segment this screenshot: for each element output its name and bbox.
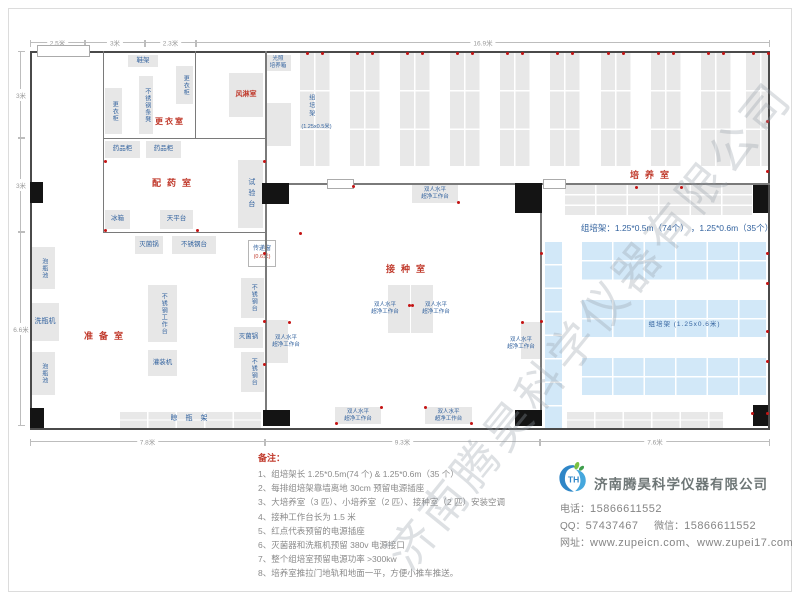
notes-title: 备注： [258, 451, 505, 464]
power-outlet-dot [540, 252, 543, 255]
power-outlet-dot [104, 160, 107, 163]
power-outlet-dot [421, 52, 424, 55]
dim-left-1: 3米 [20, 51, 21, 138]
column [263, 410, 290, 426]
power-outlet-dot [196, 229, 199, 232]
power-outlet-dot [321, 52, 324, 55]
power-outlet-dot [766, 412, 769, 415]
rack-small-size-label: (1.25x0.5米) [289, 123, 344, 131]
power-outlet-dot [766, 252, 769, 255]
power-outlet-dot [521, 52, 524, 55]
note-item: 5、红点代表预留的电源插座 [258, 524, 505, 538]
company-name: 济南腾昊科学仪器有限公司 [594, 473, 768, 493]
wall-left-block [265, 51, 267, 426]
notes-block: 备注： 1、组培架长 1.25*0.5m(74 个) & 1.25*0.6m（3… [258, 451, 505, 581]
power-outlet-dot [657, 52, 660, 55]
note-item: 1、组培架长 1.25*0.5m(74 个) & 1.25*0.6m（35 个） [258, 467, 505, 481]
column [753, 185, 768, 213]
power-outlet-dot [288, 321, 291, 324]
room-label-pharmacy: 配药室 [152, 176, 197, 189]
power-outlet-dot [540, 320, 543, 323]
company-logo-icon: TH [556, 461, 590, 495]
power-outlet-dot [766, 360, 769, 363]
note-item: 2、每排组培架靠墙离地 30cm 预留电源插座 [258, 481, 505, 495]
room-label-culture: 培养室 [630, 168, 675, 181]
dim-bottom-1: 7.8米 [30, 441, 265, 442]
power-outlet-dot [352, 185, 355, 188]
power-outlet-dot [680, 186, 683, 189]
dim-left-2: 3米 [20, 138, 21, 232]
column [753, 405, 768, 426]
wall-dressing-airshower [195, 51, 196, 138]
power-outlet-dot [263, 252, 266, 255]
power-outlet-dot [766, 330, 769, 333]
dim-top-3: 2.3米 [145, 42, 196, 43]
power-outlet-dot [470, 422, 473, 425]
note-item: 7、整个组培室预留电源功率 >300kw [258, 552, 505, 566]
dual-clean-bench-label: 双人水平超净工作台 [415, 300, 457, 318]
power-outlet-dot [263, 160, 266, 163]
power-outlet-dot [411, 304, 414, 307]
power-outlet-dot [766, 120, 769, 123]
outer-wall [30, 51, 770, 430]
power-outlet-dot [299, 232, 302, 235]
power-outlet-dot [607, 52, 610, 55]
dual-clean-bench-label: 双人水平超净工作台 [266, 333, 306, 351]
power-outlet-dot [556, 52, 559, 55]
svg-text:TH: TH [568, 474, 579, 484]
column [30, 182, 43, 203]
note-item: 8、培养室推拉门地轨和地面一平，方便小推车推送。 [258, 566, 505, 580]
room-label-inoculation: 接种室 [386, 262, 431, 275]
dual-clean-bench-label: 双人水平超净工作台 [364, 300, 406, 318]
company-website-line: 网址：www.zupeicn.com、www.zupei17.com [560, 534, 793, 550]
power-outlet-dot [767, 52, 770, 55]
dim-top-4: 16.9米 [196, 42, 770, 43]
room-label-dressing: 更衣室 [155, 116, 185, 127]
rack-small-label: 组培架 [303, 87, 317, 125]
power-outlet-dot [335, 422, 338, 425]
door-culture-rackroom [543, 179, 566, 189]
wall-inoculation-rackroom [540, 183, 542, 426]
power-outlet-dot [622, 52, 625, 55]
dual-clean-bench-label: 双人水平超净工作台 [501, 335, 541, 353]
dim-bottom-3: 7.6米 [540, 441, 770, 442]
power-outlet-dot [104, 229, 107, 232]
rack-big-label: 组培架 (1.25x0.6米) [637, 320, 732, 330]
room-label-prep: 准备室 [84, 329, 129, 342]
wall-pharmacy-prep [103, 232, 266, 233]
power-outlet-dot [635, 186, 638, 189]
column [515, 183, 542, 213]
dim-top-2: 3米 [85, 42, 145, 43]
power-outlet-dot [506, 52, 509, 55]
power-outlet-dot [371, 52, 374, 55]
power-outlet-dot [263, 363, 266, 366]
power-outlet-dot [263, 320, 266, 323]
wall-dressing-pharmacy [103, 138, 265, 139]
dim-top-1: 2.5米 [30, 42, 85, 43]
power-outlet-dot [406, 52, 409, 55]
note-item: 6、灭菌器和洗瓶机预留 380v 电源接口 [258, 538, 505, 552]
power-outlet-dot [751, 412, 754, 415]
power-outlet-dot [457, 201, 460, 204]
entry-sliding-door [37, 45, 90, 57]
column [30, 408, 44, 428]
power-outlet-dot [356, 52, 359, 55]
power-outlet-dot [471, 52, 474, 55]
power-outlet-dot [707, 52, 710, 55]
note-item: 3、大培养室（3 匹）、小培养室（2 匹）、接种室（2 匹）安装空调 [258, 495, 505, 509]
power-outlet-dot [752, 52, 755, 55]
power-outlet-dot [571, 52, 574, 55]
column [515, 410, 542, 426]
power-outlet-dot [380, 406, 383, 409]
power-outlet-dot [424, 406, 427, 409]
drying-rack-label: 晾瓶架 [148, 413, 238, 425]
power-outlet-dot [521, 321, 524, 324]
wall-corridor [103, 51, 104, 232]
power-outlet-dot [766, 170, 769, 173]
floor-plan-page: { "watermark": "济南腾昊科学仪器有限公司", "dims": {… [0, 0, 800, 600]
dim-bottom-2: 9.3米 [265, 441, 540, 442]
rack-summary-note: 组培架：1.25*0.5m（74个） ，1.25*0.6m（35个） [572, 222, 782, 234]
power-outlet-dot [456, 52, 459, 55]
door-culture-inoculation [327, 179, 354, 189]
column [262, 183, 289, 204]
dim-left-3: 6.6米 [20, 232, 21, 426]
note-item: 4、接种工作台长为 1.5 米 [258, 510, 505, 524]
company-phone-line: 电话：15866611552 [560, 500, 662, 515]
power-outlet-dot [306, 52, 309, 55]
power-outlet-dot [672, 52, 675, 55]
power-outlet-dot [766, 282, 769, 285]
power-outlet-dot [722, 52, 725, 55]
company-qq-wechat-line: QQ：57437467 微信：15866611552 [560, 517, 756, 532]
